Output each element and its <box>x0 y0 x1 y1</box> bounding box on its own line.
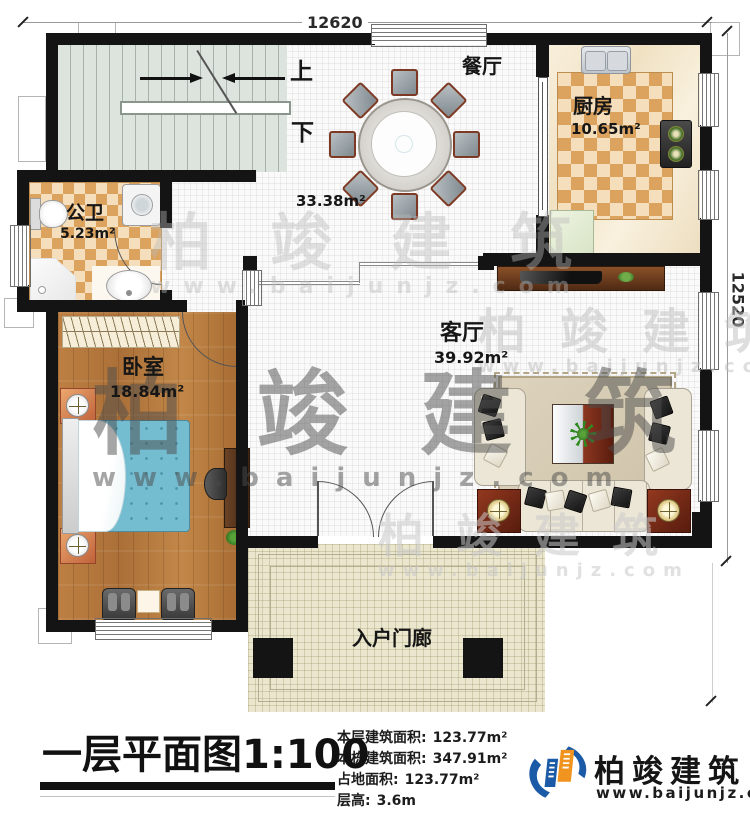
dining-chair <box>329 131 356 158</box>
tv-plant-decor <box>618 272 634 282</box>
bedroom-bottom-window <box>95 618 212 640</box>
dimension-tick <box>705 695 716 706</box>
wardrobe-rail <box>63 331 179 332</box>
top-dimension-value: 12620 <box>302 13 368 32</box>
plan-title-text: 一层平面图 <box>42 732 242 778</box>
bedroom-label: 卧室 <box>122 356 164 378</box>
living-window <box>698 292 719 370</box>
kitchen-left-wall <box>536 45 549 77</box>
bedroom-side-table <box>137 590 160 613</box>
plan-title: 一层平面图1:100 <box>42 722 369 780</box>
stat-value: 347.91m² <box>433 751 508 767</box>
top-wall <box>46 33 375 45</box>
stairs-up-label: 上 <box>290 60 313 84</box>
wardrobe <box>62 316 180 348</box>
right-dimension-value: 12520 <box>728 270 747 330</box>
nightstand-lamp <box>66 394 89 417</box>
side-table-lamp <box>657 499 680 522</box>
dining-living-column <box>478 256 494 270</box>
stair-arrow <box>190 73 203 83</box>
armchair-seat <box>121 593 130 611</box>
dining-area-label: 33.38m² <box>296 192 366 210</box>
sink-drain <box>126 290 132 296</box>
stair-direction-line <box>235 77 285 80</box>
bathroom-label: 公卫 <box>66 204 104 224</box>
bedroom-area-label: 18.84m² <box>110 382 184 401</box>
dining-chair <box>391 193 418 220</box>
plan-title-scale: 1:100 <box>242 732 369 778</box>
left-wall <box>46 45 58 182</box>
stat-floor-height: 层高:3.6m <box>337 790 416 810</box>
right-wall <box>700 218 712 292</box>
stat-label: 层高: <box>337 793 371 809</box>
bedroom-top-wall <box>17 300 187 312</box>
dining-living-column <box>243 256 257 270</box>
exterior-sill <box>710 22 740 56</box>
dining-room-label: 餐厅 <box>462 56 502 77</box>
corner-step-wall <box>692 512 712 538</box>
entry-door-leaf-left <box>317 481 319 536</box>
brand-logo: 柏竣建筑 www.baijunjz.com <box>526 742 746 806</box>
brand-site: www.baijunjz.com <box>596 784 750 802</box>
sofa-pillow <box>610 486 632 508</box>
kitchen-stove <box>660 120 692 168</box>
kitchen-bottom-wall <box>483 253 712 266</box>
dining-table-center <box>395 135 413 153</box>
bedroom-armchair <box>102 588 136 620</box>
ceiling-beam-line <box>360 262 478 266</box>
tv-cabinet <box>497 266 665 291</box>
porch-column <box>463 638 503 678</box>
kitchen-sink <box>581 46 631 74</box>
sink-basin <box>607 51 628 71</box>
nightstand-lamp <box>66 534 89 557</box>
bed-headboard <box>62 418 79 534</box>
stove-burner <box>668 146 684 162</box>
logo-buildings <box>545 750 575 787</box>
dining-top-window <box>371 24 487 47</box>
kitchen-fridge <box>550 210 594 254</box>
bathroom-top-wall <box>17 170 256 182</box>
sink-basin <box>585 51 606 71</box>
stat-value: 3.6m <box>377 793 416 809</box>
kitchen-area-label: 10.65m² <box>571 120 641 138</box>
bedroom-armchair <box>161 588 195 620</box>
desk-chair <box>204 468 227 500</box>
kitchen-sliding-door <box>538 77 548 217</box>
bathroom-sink <box>106 270 152 302</box>
bathroom-left-wall <box>17 182 29 225</box>
right-wall <box>700 45 712 73</box>
entry-door-leaf-right <box>432 481 434 536</box>
bedroom-bottom-wall <box>46 620 95 632</box>
stair-direction-line <box>140 77 192 80</box>
kitchen-window <box>698 170 719 220</box>
ceiling-beam-line <box>257 281 360 285</box>
stairs-down-label: 下 <box>291 121 314 145</box>
kitchen-window <box>698 73 719 127</box>
washer-door <box>131 194 153 216</box>
kitchen-label: 厨房 <box>573 96 613 117</box>
stove-burner <box>668 126 684 142</box>
living-area-label: 39.92m² <box>434 348 508 367</box>
coffee-table-plant-core <box>577 428 589 440</box>
exterior-sill <box>18 96 46 162</box>
living-bottom-wall <box>236 536 318 548</box>
bedroom-left-wall <box>46 312 58 632</box>
porch-column <box>253 638 293 678</box>
armchair-seat <box>108 593 117 611</box>
dining-chair <box>391 69 418 96</box>
title-underline-thin <box>40 796 335 797</box>
dimension-tick <box>720 555 731 566</box>
bedroom-porch-wall <box>236 536 248 632</box>
living-room-label: 客厅 <box>440 322 484 345</box>
stair-landing-rail <box>120 101 291 115</box>
armchair-seat <box>180 593 189 611</box>
sliding-door-track <box>542 82 543 210</box>
top-wall <box>487 33 712 45</box>
shower-drain <box>38 286 46 294</box>
bathroom-window <box>10 225 31 287</box>
living-bottom-wall <box>433 536 652 548</box>
stat-value: 123.77m² <box>405 772 480 788</box>
stair-arrow <box>222 73 235 83</box>
floor-plan-canvas: 12620 12520 <box>0 0 750 814</box>
bathroom-area-label: 5.23m² <box>60 226 115 242</box>
armchair-seat <box>167 593 176 611</box>
dim-extension-line <box>712 563 713 703</box>
coffee-table <box>552 404 614 464</box>
bedroom-right-wall <box>236 312 248 536</box>
sofa-pillow <box>544 489 566 511</box>
partition-screen <box>242 270 262 306</box>
bathroom-right-wall <box>160 182 172 228</box>
title-underline <box>40 782 335 790</box>
brand-logo-icon <box>526 742 588 802</box>
side-table-lamp <box>487 499 510 522</box>
right-wall <box>700 125 712 170</box>
tv-screen <box>520 271 602 284</box>
living-window <box>698 430 719 502</box>
right-wall <box>700 368 712 430</box>
washing-machine <box>122 184 161 226</box>
stat-value: 123.77m² <box>433 730 508 746</box>
dining-chair <box>453 131 480 158</box>
ceiling-beam-joint <box>359 262 360 283</box>
porch-label: 入户门廊 <box>352 628 432 649</box>
living-bottom-wall <box>652 536 712 548</box>
toilet-bowl <box>39 200 68 228</box>
